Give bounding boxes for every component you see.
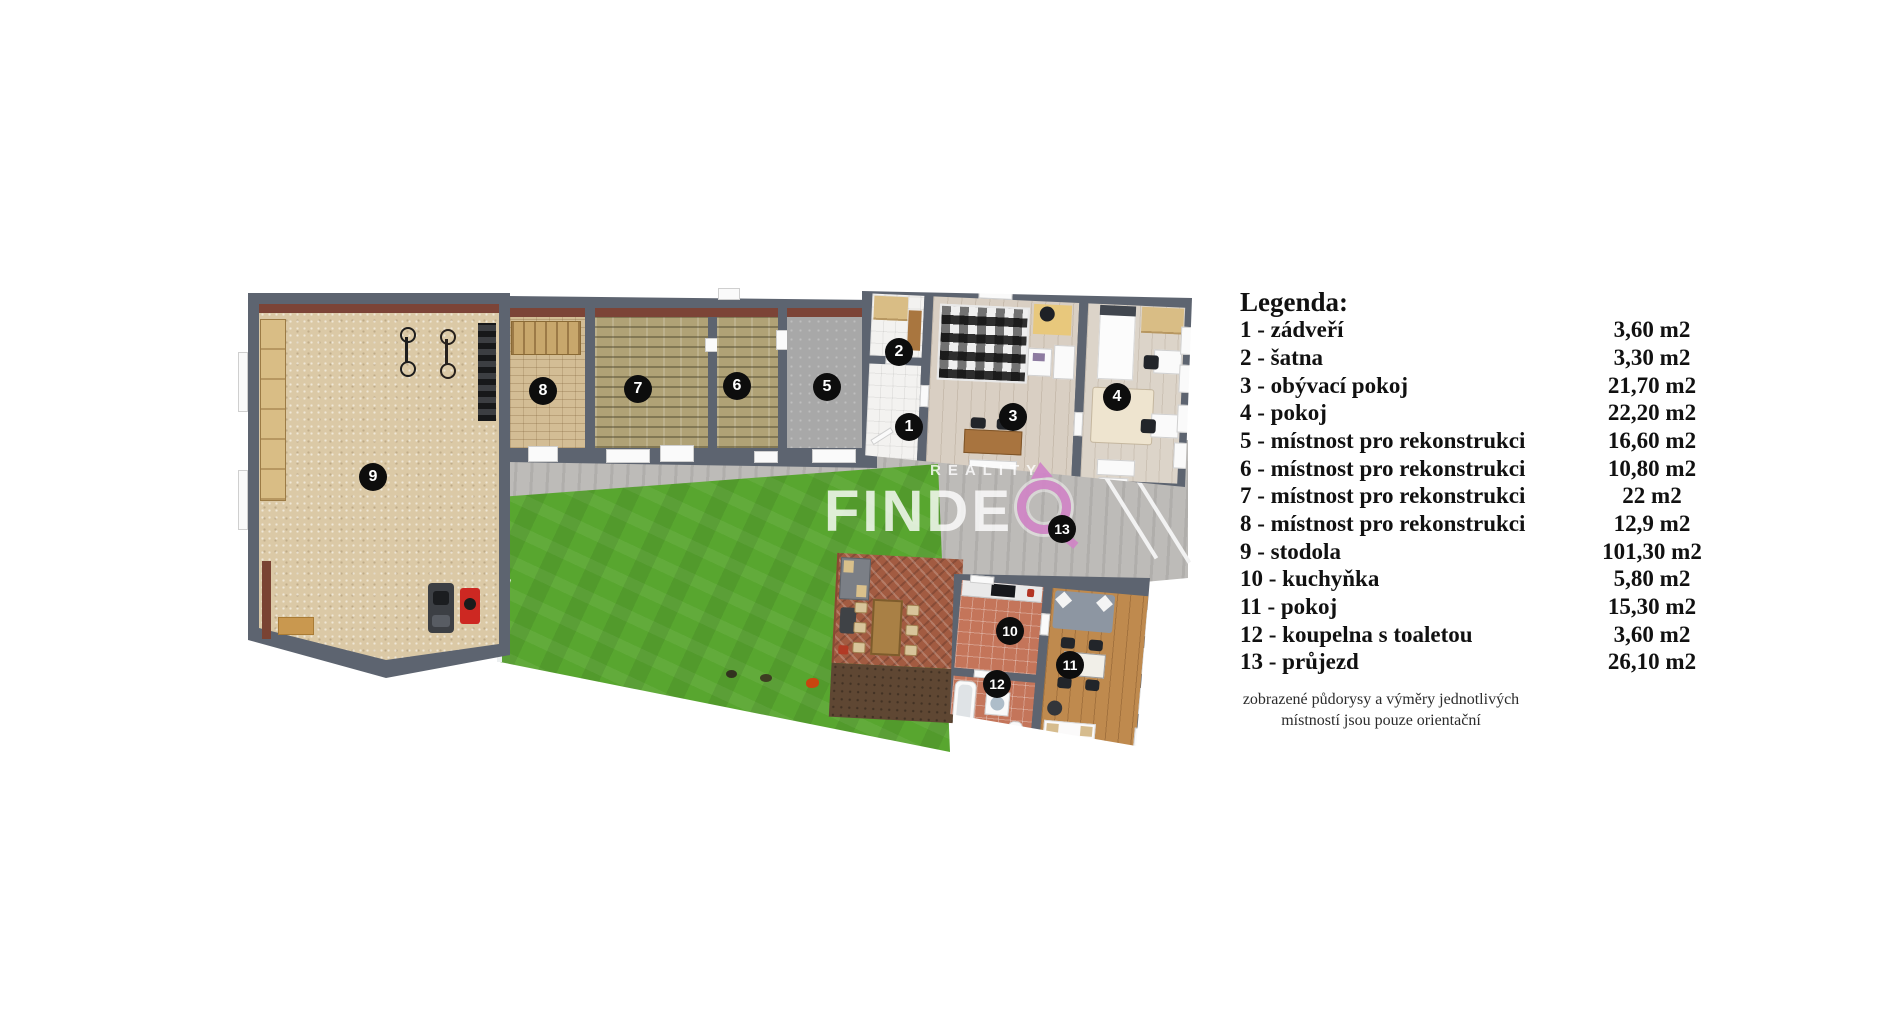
rooms-10-to-12-block [948,566,1156,750]
legend-label: 6 - místnost pro rekonstrukci [1240,456,1525,481]
watermark-findeo-text: FINDE [824,480,1071,541]
badge-1: 1 [895,413,923,441]
room-4-wardrobe [1141,307,1184,335]
badge-3: 3 [999,403,1027,431]
garden-chair [853,622,867,634]
legend-row: 3 - obývací pokoj 21,70 m2 [1240,373,1760,401]
legend-area: 22 m2 [1564,483,1740,509]
badge-12: 12 [983,670,1011,698]
room-11-bed [1040,720,1095,766]
tub-basin [956,684,973,721]
lounger-cushion [856,585,867,598]
legend-area: 3,60 m2 [1564,317,1740,343]
rooster-icon [806,678,819,688]
chair [1088,639,1103,651]
interior-wall-band [259,304,499,313]
garden-chair [854,602,868,614]
hen-icon [726,670,737,678]
chair [1085,679,1100,691]
badge-6: 6 [723,372,751,400]
window [754,451,778,463]
wall-shelves [260,319,286,501]
lounger-cushion [843,560,854,573]
legend-area: 16,60 m2 [1564,428,1740,454]
wall-6-5 [778,300,787,448]
legend-label: 8 - místnost pro rekonstrukci [1240,511,1525,536]
badge-11: 11 [1056,651,1084,679]
legend-row: 7 - místnost pro rekonstrukci 22 m2 [1240,483,1760,511]
floor-plan-page: REALITY FINDE 1 2 3 4 5 6 7 8 9 10 11 12… [0,0,1900,1017]
disclaimer-line-2: místností jsou pouze orientační [1242,710,1520,731]
sofa-pillow [1096,595,1113,612]
desk-chair [1140,419,1156,434]
legend-area: 22,20 m2 [1564,400,1740,426]
legend-row: 2 - šatna 3,30 m2 [1240,345,1760,373]
bike-frame [445,339,448,365]
hen-icon [760,674,772,682]
legend-area: 21,70 m2 [1564,373,1740,399]
sofa-pillow [1055,591,1072,608]
bathtub [951,680,977,726]
watermark-compass-arrow-icon [1029,461,1053,479]
legend-area: 5,80 m2 [1564,566,1740,592]
room-11-sofa [1052,590,1115,633]
legend-area: 26,10 m2 [1564,649,1740,675]
legend-row: 9 - stodola 101,30 m2 [1240,539,1760,567]
bay-window [1177,405,1193,434]
desk-chair [1143,355,1159,370]
wood-plank [262,561,271,639]
legend-row: 10 - kuchyňka 5,80 m2 [1240,566,1760,594]
legend-label: 13 - průjezd [1240,649,1359,674]
bicycle-icon [436,329,456,375]
legend-area: 15,30 m2 [1564,594,1740,620]
legend-area: 10,80 m2 [1564,456,1740,482]
window [238,352,248,412]
watermark-reality-text: REALITY [930,462,1043,479]
bike-wheel [440,329,456,345]
bicycle-icon [396,327,416,373]
washer-drum [990,696,1005,711]
window [1133,728,1148,753]
ladder [478,323,496,421]
bay-window [1180,327,1196,356]
interior-wall-band [510,308,872,317]
door [660,445,694,462]
legend-area: 3,30 m2 [1564,345,1740,371]
legend-title: Legenda: [1240,287,1348,318]
chair [1060,637,1075,649]
legend-disclaimer: zobrazené půdorysy a výměry jednotlivých… [1242,689,1520,731]
window [812,449,856,463]
legend-row: 8 - místnost pro rekonstrukci 12,9 m2 [1240,511,1760,539]
window [1138,688,1153,715]
disclaimer-line-1: zobrazené půdorysy a výměry jednotlivých [1242,689,1520,710]
door [528,446,558,462]
window [1145,610,1160,637]
legend-row: 12 - koupelna s toaletou 3,60 m2 [1240,622,1760,650]
legend-label: 2 - šatna [1240,345,1323,370]
watermark-findeo-letters: FINDE [824,479,1013,544]
bed-pillow [1046,723,1059,734]
legend-label: 4 - pokoj [1240,400,1327,425]
legend-area: 101,30 m2 [1564,539,1740,565]
badge-5: 5 [813,373,841,401]
flower-pot [838,645,848,655]
bike-wheel [400,327,416,343]
legend-area: 3,60 m2 [1564,622,1740,648]
garden-chair [906,605,920,617]
legend-label: 7 - místnost pro rekonstrukci [1240,483,1525,508]
soil-bed [829,663,956,723]
legend-label: 10 - kuchyňka [1240,566,1379,591]
legend-row: 13 - průjezd 26,10 m2 [1240,649,1760,677]
bay-window [1178,365,1194,394]
mower-seat [433,591,449,605]
window [978,289,1012,300]
garden-chair [905,625,919,637]
room-4-dresser [1097,459,1136,477]
room-3-crib [1053,345,1076,380]
ride-on-mower [428,583,454,633]
push-mower [460,588,480,624]
room-4-headboard [1100,305,1136,317]
terrace [829,553,961,723]
legend-label: 1 - zádveří [1240,317,1343,342]
window [238,470,248,530]
legend-label: 9 - stodola [1240,539,1341,564]
legend-label: 3 - obývací pokoj [1240,373,1408,398]
legend-label: 12 - koupelna s toaletou [1240,622,1473,647]
bike-frame [405,337,408,363]
garden-table [870,599,903,656]
room-3-coffee-table [1027,348,1052,377]
badge-8: 8 [529,377,557,405]
window [606,449,650,463]
kitchen-jar [1027,589,1035,598]
badge-10: 10 [996,617,1024,645]
badge-7: 7 [624,375,652,403]
wall-8-7 [585,300,595,448]
legend-row: 6 - místnost pro rekonstrukci 10,80 m2 [1240,456,1760,484]
badge-4: 4 [1103,383,1131,411]
cooktop [991,584,1016,598]
room-2-shelves [873,296,908,322]
chair [971,417,986,429]
wall-7-6 [708,352,717,448]
bike-wheel [440,363,456,379]
garden-chair [852,642,866,654]
mower-engine [464,598,476,610]
toilet [1006,721,1024,742]
block-interior [933,565,1156,766]
room-3-dining-table [963,429,1022,456]
garden-chair [904,645,918,657]
legend-row: 11 - pokoj 15,30 m2 [1240,594,1760,622]
chimney [718,288,740,300]
badge-2: 2 [885,338,913,366]
window [1141,648,1156,675]
legend-label: 5 - místnost pro rekonstrukci [1240,428,1525,453]
bench [278,617,314,635]
room-8-stairs [511,321,581,355]
bed-pillow [1080,726,1093,737]
room-3-plaid-sofa-bed [937,304,1030,384]
badge-9: 9 [359,463,387,491]
mower-deck [432,615,450,627]
badge-13: 13 [1048,515,1076,543]
legend-row: 5 - místnost pro rekonstrukci 16,60 m2 [1240,428,1760,456]
legend-row: 4 - pokoj 22,20 m2 [1240,400,1760,428]
bike-wheel [400,361,416,377]
pillow [1033,353,1045,362]
legend-row: 1 - zádveří 3,60 m2 [1240,317,1760,345]
room-7-floor [595,317,708,448]
legend-label: 11 - pokoj [1240,594,1337,619]
lounger [839,557,871,601]
legend-area: 12,9 m2 [1564,511,1740,537]
